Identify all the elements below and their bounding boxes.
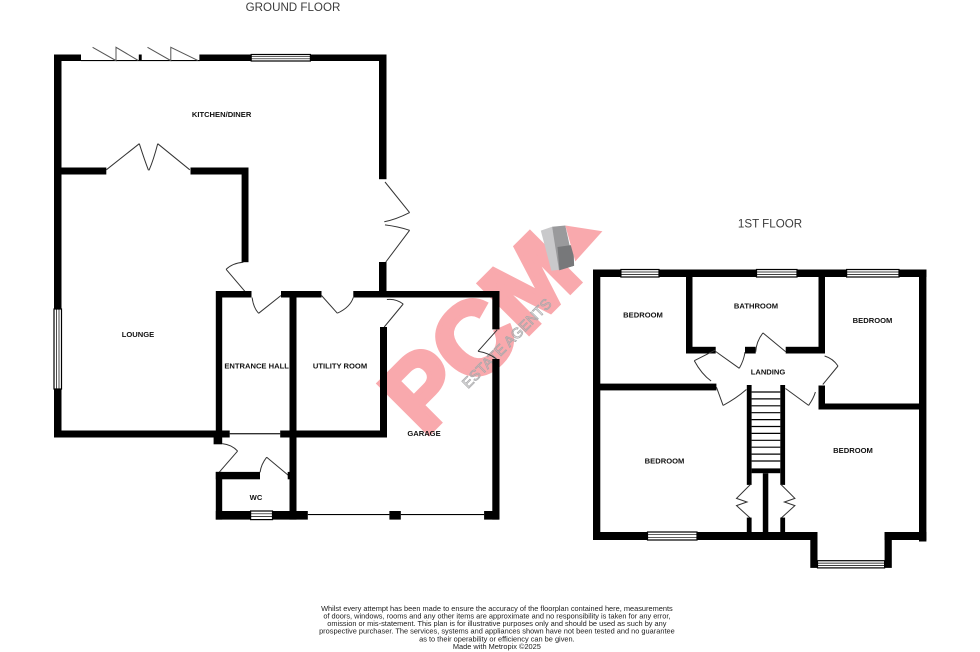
svg-text:BEDROOM: BEDROOM <box>623 310 663 319</box>
svg-text:UTILITY ROOM: UTILITY ROOM <box>313 362 367 371</box>
svg-text:BEDROOM: BEDROOM <box>645 456 685 465</box>
svg-text:KITCHEN/DINER: KITCHEN/DINER <box>192 110 252 119</box>
svg-text:BEDROOM: BEDROOM <box>853 316 893 325</box>
svg-text:GARAGE: GARAGE <box>407 429 440 438</box>
svg-text:LOUNGE: LOUNGE <box>122 330 155 339</box>
svg-text:1ST FLOOR: 1ST FLOOR <box>738 218 802 231</box>
svg-text:BATHROOM: BATHROOM <box>734 301 778 310</box>
svg-text:Made with Metropix ©2025: Made with Metropix ©2025 <box>453 642 541 651</box>
svg-text:LANDING: LANDING <box>751 367 786 376</box>
svg-text:GROUND FLOOR: GROUND FLOOR <box>246 1 341 14</box>
svg-text:BEDROOM: BEDROOM <box>833 446 873 455</box>
svg-text:ENTRANCE HALL: ENTRANCE HALL <box>224 362 289 371</box>
svg-text:WC: WC <box>250 493 263 502</box>
